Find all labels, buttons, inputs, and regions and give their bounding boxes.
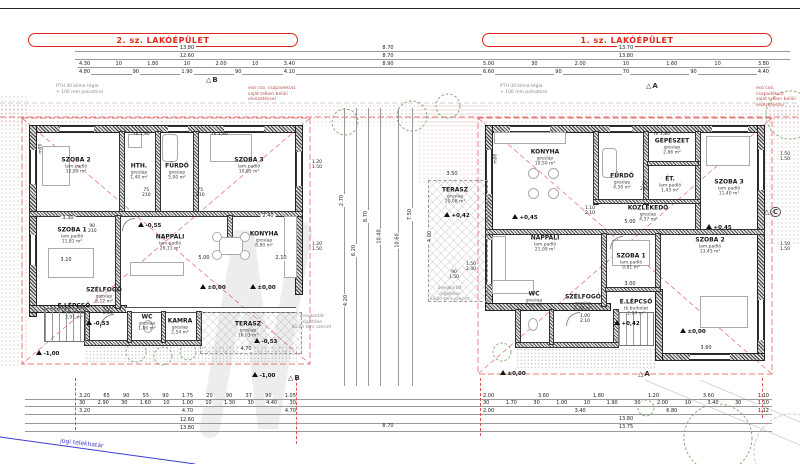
wall (656, 290, 662, 360)
room-label-wc-b1: WC greslap 1,50 m² (525, 291, 543, 308)
section-marker-b-top: B (206, 76, 218, 84)
inner-dim: 3.10 (58, 258, 73, 263)
sheet-border-line (0, 8, 800, 9)
chair (240, 232, 250, 242)
window (712, 126, 748, 132)
dim-value: 1.90 (606, 401, 619, 406)
window (610, 126, 632, 132)
glass-railing-note-b2: üvegkorlát rögzítése külön terv szerint (292, 314, 331, 331)
room-label-lepcso-b2: E.LÉPCSŐ tk.burkolat 2,91 m² (58, 303, 91, 320)
dim-value: 3.20 (78, 409, 91, 414)
dim-value: 1.30 (223, 401, 236, 406)
gutter-note-b1: eső cső, csapadékvíz saját telken belüli… (756, 86, 800, 109)
gutter-note-b2: eső cső, csapadékvíz saját telken belüli… (248, 86, 304, 103)
paved-circle (754, 414, 800, 464)
annex-wall (516, 343, 618, 347)
dim-total-b1-bottom: 13.75 (617, 425, 635, 430)
dim-value: 4.80 (78, 70, 91, 75)
dim-value: 55 (142, 394, 150, 399)
building-2-title: 2. sz. LAKÓÉPÜLET (117, 36, 210, 45)
dim-line (75, 59, 790, 60)
dim-pair: 1.50 1.50 (780, 152, 790, 163)
ground-stipple-left (0, 95, 28, 367)
room-label-szoba2-b2: SZOBA 2 lam.padló 12,80 m² (61, 157, 90, 174)
dim-value: 1.60 (139, 401, 152, 406)
dim-value: 1.75 (181, 394, 194, 399)
dim-value: 3.20 (78, 394, 91, 399)
door-size-tag: 90 210 (88, 224, 97, 234)
dim-value: 1.12 (757, 409, 770, 414)
dim-value: 4.70 (284, 409, 297, 414)
room-label-furdo-b1: FÜRDŐ greslap 4,50 m² (610, 173, 634, 190)
dim-value: 90 (554, 70, 562, 75)
section-marker-c-right: C (764, 208, 781, 216)
gap-vdim: 10.60 (396, 232, 401, 248)
gap-vdim: 8.70 (364, 210, 369, 223)
inner-dim-vertical: 4.00 (428, 230, 433, 243)
dim-sub-b1-bottom: 13.80 (617, 417, 635, 422)
room-label-szelfogo-b2: SZÉLFOGÓ greslap 5,12 m² (86, 287, 122, 304)
elevation-marker: -1,00 (252, 372, 275, 379)
inner-dim: 5.00 (622, 220, 637, 225)
plot-boundary-label: jogi telekhatár (60, 437, 104, 449)
annex-wall (162, 312, 165, 342)
dim-value: 30 (482, 401, 490, 406)
dim-value: 2.00 (482, 394, 495, 399)
dim-value: 70 (622, 70, 630, 75)
dim-value: 3.60 (702, 394, 715, 399)
dim-value: 4.40 (757, 70, 770, 75)
kitchen-counter (494, 132, 566, 144)
dim-pair: 1.20 1.50 (312, 242, 322, 253)
room-label-szelfogo-b1: SZÉLFOGÓ greslap 4,28 m² (565, 294, 601, 311)
dim-line-vertical (368, 108, 369, 386)
dim-value: 1.05 (284, 394, 297, 399)
window (224, 126, 264, 132)
dim-value: 90 (122, 394, 130, 399)
room-label-lepcso-b1: E.LÉPCSŐ tk.burkolat 2,04 m² (620, 299, 653, 316)
door-size-tag: 75 210 (196, 188, 205, 198)
gap-dim: 8.70 (380, 46, 395, 51)
dim-value: 4.10 (283, 70, 296, 75)
elevation-marker: +0,42 (614, 320, 640, 327)
sill-tag: m90 (38, 144, 43, 154)
dim-value: 10 (183, 62, 191, 67)
elevation-marker: -0,55 (138, 222, 161, 229)
dim-value: 90 (264, 394, 272, 399)
dim-row-b2-bot3: 3.204.704.70 (78, 409, 297, 414)
chair (548, 188, 559, 199)
room-label-konyha-b2: KONYHA greslap 8,80 m² (250, 231, 279, 248)
bed (48, 248, 94, 278)
dim-row-b2-bot1: 3.20659055901.75209037901.05 (78, 394, 297, 399)
dim-value: 1.20 (647, 394, 660, 399)
annex-wall (128, 312, 131, 342)
dim-value: 10 (162, 401, 170, 406)
door-size-tag: 75 210 (640, 182, 649, 192)
inner-dim: 5.00 (196, 256, 211, 261)
lintel-tag: m 1,80 (654, 132, 670, 137)
dim-value: 6.80 (665, 409, 678, 414)
dim-sub-b1: 13.80 (617, 54, 635, 59)
dim-value: 10 (251, 62, 259, 67)
dim-line (25, 406, 772, 407)
elevation-marker: ±0,00 (680, 328, 706, 335)
window (690, 354, 730, 360)
window (168, 126, 188, 132)
bathtub (162, 134, 178, 162)
room-label-szoba1-b2: SZOBA 1 lam.padló 11,81 m² (57, 227, 86, 244)
room-label-furdo-b2: FÜRDŐ greslap 5,00 m² (165, 163, 189, 180)
wall-spec-note-b2: PTH 30 klíma tégla + 100 mm polisztirol (56, 84, 103, 95)
partition-wall (120, 132, 124, 216)
door-size-tag: 1.00 2.10 (580, 314, 590, 324)
dim-total-b2-bottom: 13.80 (178, 426, 196, 431)
elevation-marker: -1,00 (36, 350, 59, 357)
dim-value: 90 (161, 394, 169, 399)
annex-wall (550, 310, 553, 344)
dim-value: 1.10 (757, 394, 770, 399)
inner-dim: 3.50 (444, 172, 459, 177)
dim-value: 30 (246, 401, 254, 406)
dim-value: 10 (713, 62, 721, 67)
partition-wall (594, 132, 598, 204)
bed (700, 296, 748, 328)
gap-vdim: 2.70 (340, 194, 345, 207)
dim-value: 2.00 (656, 401, 669, 406)
chair (212, 250, 222, 260)
dim-line (78, 67, 770, 68)
dim-value: 2.00 (482, 409, 495, 414)
sofa (130, 262, 184, 276)
dim-value: 1.90 (180, 70, 193, 75)
window (758, 300, 764, 340)
section-marker-a-bottom: A (638, 370, 650, 378)
dim-value: 90 (689, 70, 697, 75)
gap-dim: 8.70 (380, 54, 395, 59)
floor-plan-sheet: 2. sz. LAKÓÉPÜLET 1. sz. LAKÓÉPÜLET 13.8… (0, 0, 800, 464)
bed (706, 136, 750, 166)
dim-value: 1.70 (505, 401, 518, 406)
dim-value: 1.60 (665, 62, 678, 67)
dim-row-b1-bot2: 301.70301.00101.90302.00103.40301.10 (482, 401, 770, 406)
kitchen-counter (284, 216, 297, 278)
dim-value: 3.60 (537, 394, 550, 399)
chair (528, 188, 539, 199)
dim-value: 1.80 (592, 394, 605, 399)
elevation-marker: ±0,00 (500, 370, 526, 377)
door-swing (566, 312, 580, 326)
window (30, 150, 36, 184)
dim-line (75, 51, 790, 52)
room-label-szoba2-b1: SZOBA 2 lam.padló 13,45 m² (695, 237, 724, 254)
dim-line-vertical (412, 108, 413, 386)
dim-value: 30 (78, 401, 86, 406)
partition-wall (606, 288, 660, 291)
inner-dim: 2.40 (260, 214, 275, 219)
elevation-marker: +0,45 (706, 224, 732, 231)
dim-value: 30 (120, 401, 128, 406)
setting-out-line (75, 378, 76, 430)
sofa (492, 236, 506, 282)
building-1-title: 1. sz. LAKÓÉPÜLET (581, 36, 674, 45)
setting-out-line (480, 378, 481, 436)
room-label-wc-b2: WC greslap 1,86 m² (138, 314, 156, 331)
exterior-stair (618, 312, 654, 346)
dim-value: 1.10 (757, 401, 770, 406)
dim-value: 10 (684, 401, 692, 406)
door-size-tag: 75 210 (142, 188, 151, 198)
room-label-konyha-b1: KONYHA greslap 10,50 m² (531, 149, 560, 166)
ground-stipple-strip (0, 104, 800, 126)
dim-sub-b2: 12.60 (178, 54, 196, 59)
partition-wall (156, 132, 160, 216)
elevation-marker: ±0,00 (250, 284, 276, 291)
dim-row-b2-top4: 4.80901.90904.10 (78, 70, 296, 75)
partition-wall (656, 234, 660, 290)
section-marker-a-top: A (646, 82, 658, 90)
sill-tag: m90 (493, 154, 498, 164)
dim-value: 2.00 (215, 62, 228, 67)
dim-line-vertical (344, 108, 345, 386)
dim-value: 30 (633, 401, 641, 406)
annex-wall (85, 341, 201, 345)
dim-value: 1.00 (555, 401, 568, 406)
dim-line (25, 423, 772, 424)
room-label-et-b1: ÉT. lam.padló 1,43 m² (659, 176, 681, 193)
dim-line-vertical (380, 108, 381, 386)
lintel-tag: m 1,80 (134, 132, 150, 137)
partition-wall (594, 200, 700, 203)
room-label-terasz-b2: TERASZ greslap 16,03 m² (235, 321, 261, 338)
lintel-tag: m 1,80 (212, 132, 228, 137)
dim-value: 5.00 (482, 62, 495, 67)
gap-dim: 8.90 (380, 62, 395, 67)
dim-value: 6.60 (482, 70, 495, 75)
dim-row-b2-bot2: 302.90301.60101.00101.30304.4030 (78, 401, 297, 406)
dim-value: 1.00 (181, 401, 194, 406)
dim-value: 90 (234, 70, 242, 75)
partition-wall (648, 162, 698, 165)
dim-value: 10 (622, 62, 630, 67)
dim-total-b2: 13.80 (178, 46, 196, 51)
door-swing (610, 236, 623, 249)
dim-row-b1-bot3: 2.003.406.801.12 (482, 409, 770, 414)
room-label-gepeszet-b1: GÉPÉSZET greslap 2,86 m² (655, 138, 689, 155)
dim-value: 2.90 (97, 401, 110, 406)
chair (548, 168, 559, 179)
dim-total-b1: 13.70 (617, 46, 635, 51)
room-label-szoba3-b2: SZOBA 3 lam.padló 10,85 m² (234, 157, 263, 174)
annex-wall (516, 310, 520, 346)
partition-wall (696, 132, 700, 230)
dim-row-b1-top4: 6.609070904.40 (482, 70, 770, 75)
title-box-building-2: 2. sz. LAKÓÉPÜLET (28, 33, 298, 47)
dim-value: 4.70 (181, 409, 194, 414)
inner-dim: 3.00 (622, 282, 637, 287)
dim-value: 65 (102, 394, 110, 399)
dim-row-b1-bot1: 2.003.601.801.203.601.10 (482, 394, 770, 399)
dim-value: 37 (245, 394, 253, 399)
inner-dim: 3.30 (60, 216, 75, 221)
elevation-marker: -0,53 (254, 338, 277, 345)
dim-value: 30 (530, 62, 538, 67)
dim-value: 90 (225, 394, 233, 399)
room-label-szoba3-b1: SZOBA 3 lam.padló 11,40 m² (714, 179, 743, 196)
gap-vdim: 6.20 (352, 244, 357, 257)
dim-row-b1-top3: 5.00302.00101.60103.80 (482, 62, 770, 67)
window (758, 150, 764, 190)
room-label-terasz-b1: TERASZ greslap 20,08 m² (442, 187, 468, 204)
inner-dim: 4.70 (238, 347, 253, 352)
gap-vdim: 7.50 (408, 208, 413, 221)
window (30, 235, 36, 265)
dim-value: 90 (132, 70, 140, 75)
door-size-tag: 1.10 2.10 (585, 206, 595, 216)
chair (240, 250, 250, 260)
room-label-nappali-b1: NAPPALI lam.padló 21,09 m² (531, 235, 560, 252)
window (60, 126, 94, 132)
dim-value: 2.00 (574, 62, 587, 67)
dim-sub-b2-bottom: 12.60 (178, 418, 196, 423)
elevation-marker: ±0,00 (200, 284, 226, 291)
dim-value: 3.80 (757, 62, 770, 67)
toilet (528, 318, 538, 331)
window (296, 152, 302, 186)
dim-value: 30 (734, 401, 742, 406)
setting-out-line (296, 378, 297, 444)
dim-value: 4.40 (265, 401, 278, 406)
setting-out-line (762, 378, 763, 418)
gap-vdim: 4.20 (344, 294, 349, 307)
dim-pair: 1.50 1.50 (780, 242, 790, 253)
room-label-hth-b2: HTH. greslap 1,40 m² (130, 163, 148, 180)
wall-spec-note-b1: PTH 30 klíma tégla + 100 mm polisztirol (500, 84, 547, 95)
dim-value: 10 (204, 401, 212, 406)
door-size-tag: 1.00 2.10 (103, 306, 113, 316)
dim-value: 3.40 (574, 409, 587, 414)
dim-pair: 1.20 1.50 (312, 160, 322, 171)
dim-value: 1.80 (146, 62, 159, 67)
gravel-right-annex (516, 348, 656, 368)
inner-dim: 3.60 (698, 346, 713, 351)
partition-wall (194, 132, 198, 216)
dim-row-b2-top3: 4.30101.80102.00103.40 (78, 62, 296, 67)
dim-value: 4.30 (78, 62, 91, 67)
inner-dim: 2.10 (273, 256, 288, 261)
room-label-nappali-b2: NAPPALI lam.padló 26,11 m² (156, 234, 185, 251)
dim-line (25, 431, 772, 432)
dim-value: 3.40 (706, 401, 719, 406)
elevation-marker: +0,42 (444, 212, 470, 219)
partition-wall (602, 234, 606, 306)
section-marker-b-bottom: B (288, 374, 300, 382)
dim-line (25, 414, 772, 415)
room-label-kamra-b2: KAMRA greslap 2,54 m² (168, 318, 193, 335)
dim-value: 3.40 (283, 62, 296, 67)
ground-stipple-right (764, 105, 800, 245)
chair (212, 232, 222, 242)
gap-dim-bottom: 8.70 (380, 424, 395, 429)
elevation-marker: +0,45 (512, 214, 538, 221)
door-swing (122, 218, 135, 231)
glass-railing-note-b1: üvegkorlát rögzítése külön terv szerint (430, 286, 469, 303)
gap-vdim: 10.40 (378, 228, 383, 244)
chair (528, 168, 539, 179)
dim-value: 30 (532, 401, 540, 406)
elevation-marker: -0,53 (86, 320, 109, 327)
room-label-szoba1-b1: SZOBA 1 lam.padló 9,81 m² (616, 253, 645, 270)
dim-value: 10 (115, 62, 123, 67)
dim-value: 10 (583, 401, 591, 406)
dim-value: 20 (205, 394, 213, 399)
partition-wall (644, 132, 648, 204)
